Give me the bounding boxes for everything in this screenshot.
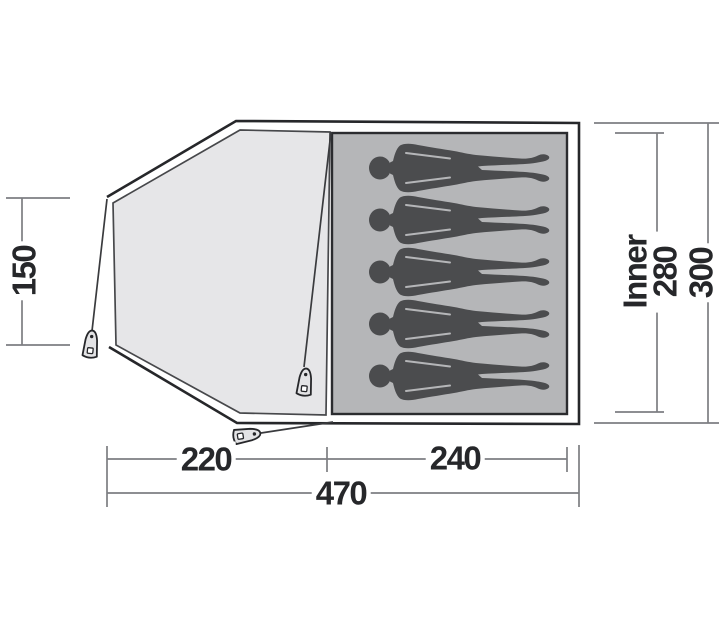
tent-diagram-canvas	[0, 0, 720, 630]
tent-peg-icon	[82, 330, 99, 359]
dimension-label-porch-depth: 150	[7, 242, 42, 301]
dimension-label-total-depth: 300	[684, 244, 719, 303]
inner-depth-value: 280	[647, 247, 684, 298]
porch-groundsheet	[113, 130, 330, 415]
tent-peg-icon	[232, 426, 261, 444]
dimension-label-inner-width: 240	[426, 441, 485, 476]
dimension-label-inner-depth: Inner 280	[620, 231, 683, 312]
dimension-label-porch-width: 220	[177, 442, 236, 477]
dimension-label-total-width: 470	[312, 476, 371, 511]
tent-floorplan-diagram: 150 220 240 470 Inner 280 300	[0, 0, 720, 630]
